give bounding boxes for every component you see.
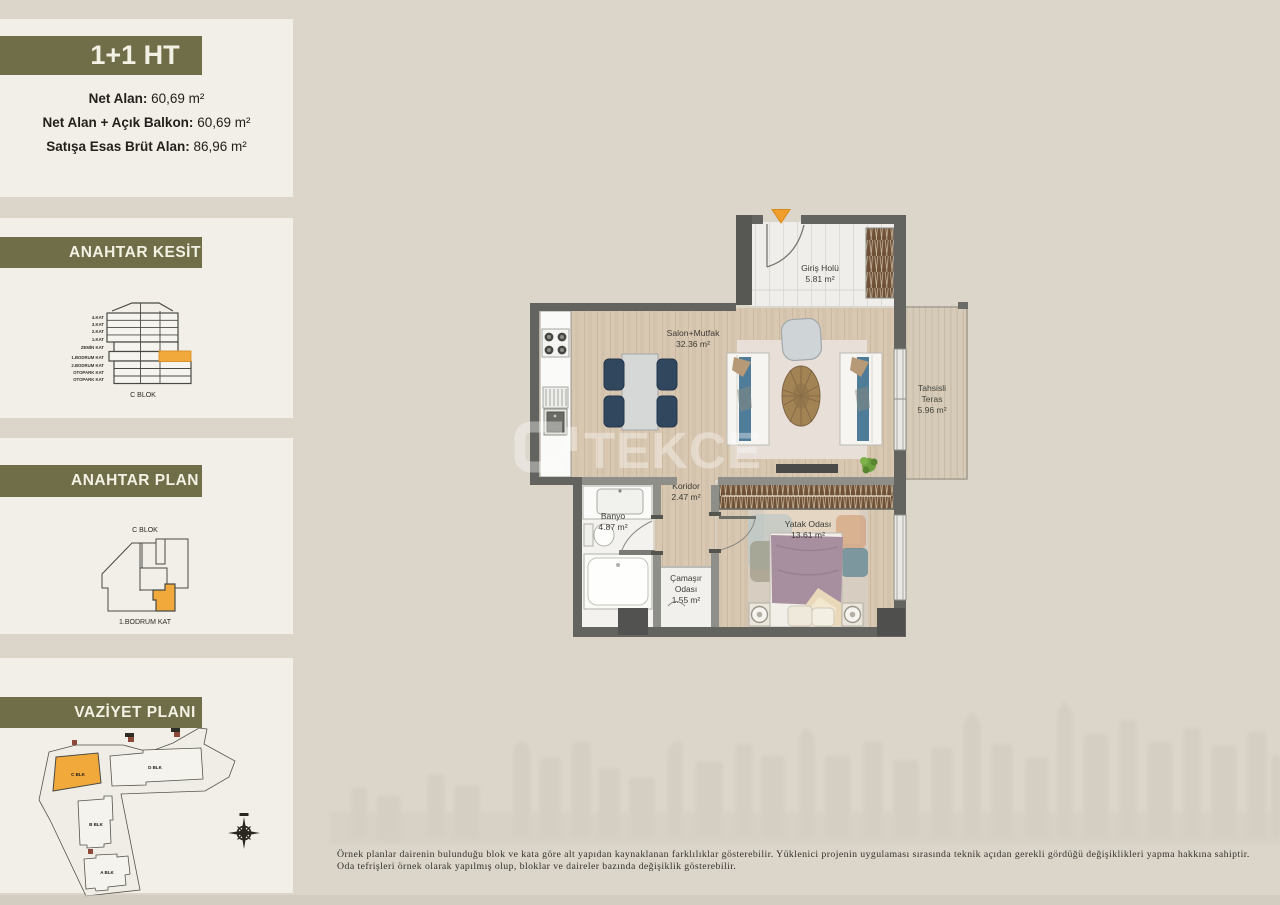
svg-text:Giriş Holü: Giriş Holü [801, 263, 839, 273]
svg-text:TEKCE: TEKCE [584, 422, 762, 479]
svg-text:5.96 m²: 5.96 m² [917, 405, 946, 415]
svg-text:1.BODRUM KAT: 1.BODRUM KAT [119, 619, 172, 626]
svg-text:Teras: Teras [921, 394, 942, 404]
svg-text:ZEMİN KAT: ZEMİN KAT [81, 345, 104, 350]
svg-text:3.KAT: 3.KAT [92, 322, 104, 327]
svg-text:C BLOK: C BLOK [132, 527, 158, 534]
svg-text:A BLK: A BLK [100, 870, 114, 875]
svg-text:1.BODRUM KAT: 1.BODRUM KAT [71, 355, 104, 360]
svg-text:32.36 m²: 32.36 m² [676, 339, 710, 349]
svg-text:13.61 m²: 13.61 m² [791, 530, 825, 540]
svg-text:Tahsisli: Tahsisli [918, 383, 946, 393]
svg-text:2.BODRUM KAT: 2.BODRUM KAT [71, 363, 104, 368]
svg-text:Salon+Mutfak: Salon+Mutfak [667, 328, 720, 338]
svg-text:C BLOK: C BLOK [130, 392, 156, 399]
svg-text:2.47 m²: 2.47 m² [671, 492, 700, 502]
svg-text:Yatak Odası: Yatak Odası [785, 519, 832, 529]
svg-text:Odası: Odası [675, 584, 697, 594]
svg-text:D BLK: D BLK [148, 765, 162, 770]
svg-text:1.55 m²: 1.55 m² [672, 595, 701, 605]
svg-text:1.KAT: 1.KAT [92, 337, 104, 342]
svg-text:5.81 m²: 5.81 m² [805, 274, 834, 284]
svg-text:OTOPARK KAT: OTOPARK KAT [73, 370, 104, 375]
svg-text:4.87 m²: 4.87 m² [598, 522, 627, 532]
svg-text:Banyo: Banyo [601, 511, 626, 521]
svg-text:C BLK: C BLK [71, 772, 85, 777]
svg-text:B BLK: B BLK [89, 822, 103, 827]
svg-text:4.KAT: 4.KAT [92, 315, 104, 320]
svg-text:OTOPARK KAT: OTOPARK KAT [73, 377, 104, 382]
svg-text:Çamaşır: Çamaşır [670, 573, 702, 583]
svg-text:2.KAT: 2.KAT [92, 329, 104, 334]
